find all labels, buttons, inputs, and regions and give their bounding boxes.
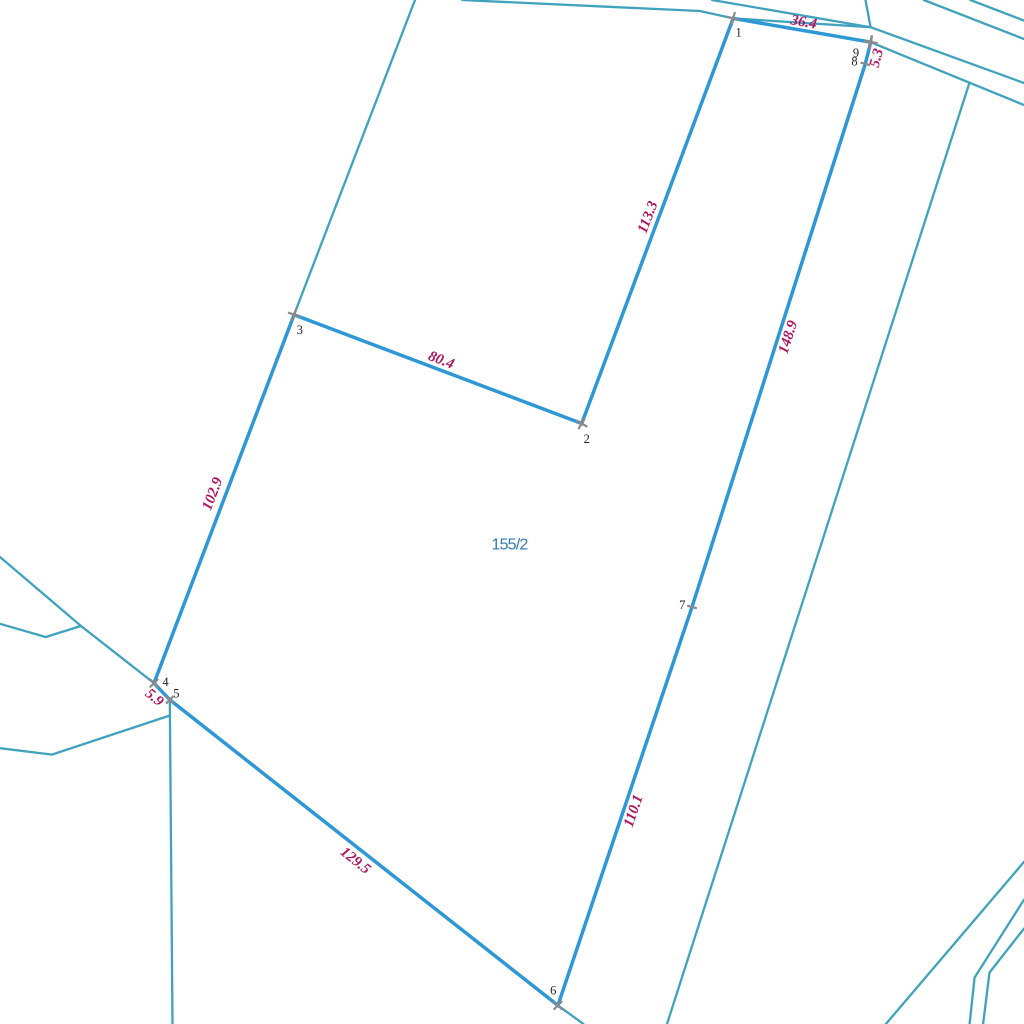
svg-text:155/2: 155/2	[491, 537, 528, 554]
svg-text:5: 5	[173, 686, 179, 700]
svg-text:7: 7	[679, 598, 685, 612]
svg-text:2: 2	[584, 432, 590, 446]
svg-text:9: 9	[853, 46, 859, 60]
svg-text:3: 3	[297, 323, 303, 337]
svg-text:6: 6	[550, 983, 556, 997]
svg-text:4: 4	[162, 675, 169, 689]
svg-text:1: 1	[735, 25, 741, 39]
